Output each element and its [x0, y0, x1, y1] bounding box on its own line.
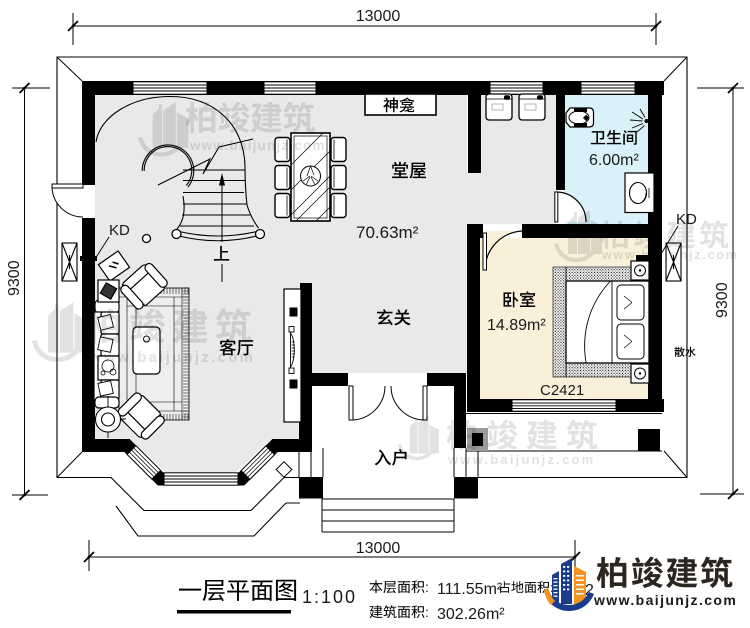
- svg-text:1:100: 1:100: [302, 587, 357, 607]
- svg-text:C2421: C2421: [540, 382, 584, 399]
- svg-text:302.26m²: 302.26m²: [437, 606, 505, 623]
- svg-text:KD: KD: [109, 222, 130, 239]
- svg-text:9300: 9300: [714, 282, 731, 318]
- svg-text:70.63m²: 70.63m²: [356, 223, 419, 242]
- svg-text::: :: [425, 604, 429, 620]
- svg-text:14.89m²: 14.89m²: [487, 317, 546, 334]
- svg-text:111.55m²: 111.55m²: [437, 581, 503, 598]
- svg-text:www.baijunjz.com: www.baijunjz.com: [447, 452, 595, 467]
- svg-text::: :: [425, 579, 429, 595]
- svg-text:www.baijunjz.com: www.baijunjz.com: [593, 592, 737, 608]
- svg-text:13000: 13000: [356, 8, 401, 25]
- svg-text:9300: 9300: [6, 260, 23, 296]
- svg-text:www.baijunjz.com: www.baijunjz.com: [89, 350, 255, 366]
- svg-text:www.baijunjz.com: www.baijunjz.com: [189, 138, 326, 153]
- svg-text:13000: 13000: [356, 540, 401, 557]
- svg-text:6.00m²: 6.00m²: [589, 152, 639, 169]
- svg-text:www.baijunjz.com: www.baijunjz.com: [601, 248, 739, 262]
